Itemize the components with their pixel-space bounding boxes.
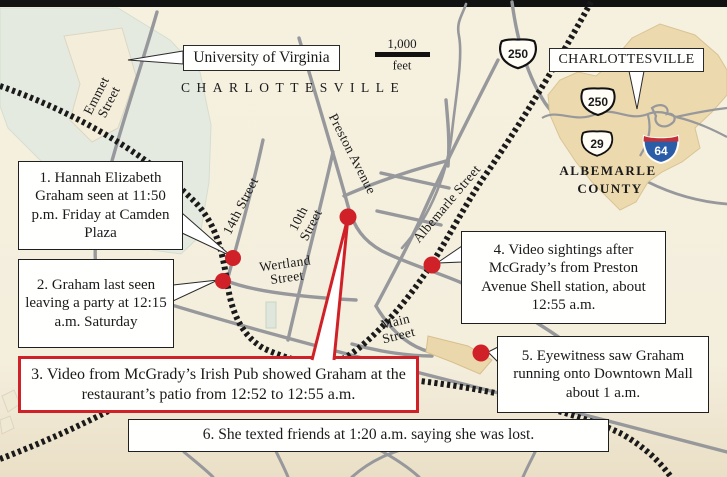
pointer-callout-2 [173,280,218,301]
callout-3-text: 3. Video from McGrady’s Irish Pub showed… [27,365,410,404]
county-label-line2: COUNTY [577,181,642,197]
downtown-mall-area [426,336,492,374]
scale-distance-label: 1,000 [387,36,416,52]
callout-6: 6. She texted friends at 1:20 a.m. sayin… [128,419,609,452]
callout-5-text: 5. Eyewitness saw Graham running onto Do… [504,347,702,402]
scale-unit-label: feet [393,59,412,74]
road-east-mid [648,182,727,204]
callout-5: 5. Eyewitness saw Graham running onto Do… [497,336,709,413]
callout-1: 1. Hannah Elizabeth Graham seen at 11:50… [18,161,183,250]
callout-3: 3. Video from McGrady’s Irish Pub showed… [18,356,419,413]
road-10th-street [288,152,333,340]
callout-2-text: 2. Graham last seen leaving a party at 1… [25,276,167,331]
inset-city-label-text: CHARLOTTESVILLE [559,52,695,68]
road-bottom-1 [184,452,213,477]
news-map-graphic: CHARLOTTESVILLE 1,000 feet Emmet Street … [0,0,727,477]
scale-bar [375,52,430,57]
callout-1-text: 1. Hannah Elizabeth Graham seen at 11:50… [25,169,176,242]
callout-4-text: 4. Video sightings after McGrady’s from … [468,241,659,314]
callout-6-text: 6. She texted friends at 1:20 a.m. sayin… [203,426,534,445]
university-label-box: University of Virginia [183,45,340,71]
inset-city-label-box: CHARLOTTESVILLE [549,48,704,72]
county-label-line1: ALBEMARLE [559,163,656,179]
callout-4: 4. Video sightings after McGrady’s from … [461,231,666,324]
us29-inset-number: 29 [590,137,603,151]
us250-inset-number: 250 [588,95,608,109]
i64-inset-number: 64 [654,144,667,158]
university-label-text: University of Virginia [193,49,329,67]
callout-2: 2. Graham last seen leaving a party at 1… [18,259,174,348]
us250-main-number: 250 [508,47,528,61]
city-spread-label: CHARLOTTESVILLE [181,80,405,96]
